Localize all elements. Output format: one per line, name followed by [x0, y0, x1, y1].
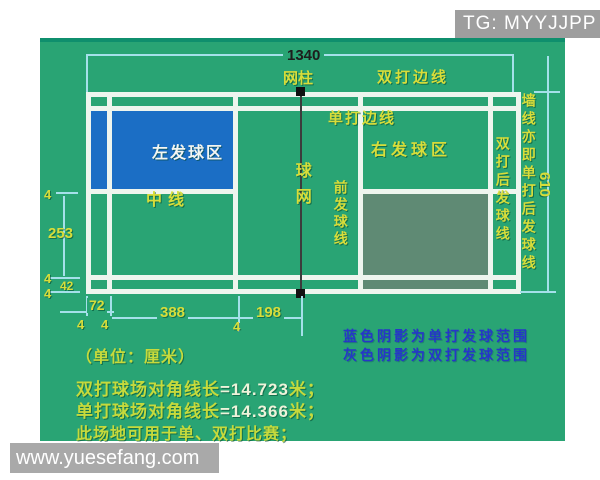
net-label: 球网	[292, 162, 309, 214]
doubles-sideline-label: 双打边线	[377, 70, 449, 86]
dim-label-610: 610	[536, 172, 552, 197]
court-line-right-doubles-long-service	[488, 92, 493, 294]
dim-label-42: 42	[60, 280, 73, 293]
singles-diagonal-note: 单打球场对角线长=14.366米；	[76, 397, 325, 422]
dim-label-388: 388	[157, 305, 188, 321]
dim-ext-72-right	[110, 296, 112, 316]
court-line-bottom-singles-sideline	[86, 275, 521, 280]
dim-tick-610-top	[534, 91, 560, 93]
blue-shading-note: 蓝色阴影为单打发球范围	[343, 326, 530, 346]
tg-badge: TG: MYYJJPP	[455, 10, 600, 38]
dim-ext-1340-left	[86, 54, 88, 92]
site-watermark: www.yuesefang.com	[10, 443, 219, 473]
court-line-left-back-boundary	[86, 92, 91, 294]
gray-shading-note: 灰色阴影为双打发球范围	[343, 345, 530, 365]
dim-tick-centerline	[56, 192, 78, 194]
dim-label-1340: 1340	[283, 48, 324, 64]
dim-label-253: 253	[48, 226, 73, 242]
court-line-left-front-service	[233, 92, 238, 294]
right-service-area-label: 右发球区	[371, 143, 451, 160]
front-service-line-label: 前发球线	[333, 180, 348, 248]
singles-diagonal-suffix: 米；	[289, 402, 325, 421]
wall-line-label: 墙线亦即单打后发球线	[521, 93, 536, 273]
dim-label-4-centerline: 4	[44, 188, 51, 202]
doubles-back-service-line-label: 双打后发球线	[495, 136, 510, 244]
dim-label-4-b3: 4	[233, 320, 240, 334]
net-post-label: 网柱	[283, 71, 313, 87]
singles-diagonal-value: =14.366	[220, 402, 289, 421]
court-line-left-doubles-long-service	[107, 92, 112, 294]
singles-diagonal-prefix: 单打球场对角线长	[76, 402, 220, 421]
usage-note: 此场地可用于单、双打比赛；	[76, 420, 297, 444]
dim-label-198: 198	[253, 305, 284, 321]
net-post-top	[296, 87, 305, 96]
left-service-area-label: 左发球区	[152, 146, 224, 163]
dim-label-4-b2: 4	[101, 318, 108, 332]
dim-ext-net	[301, 296, 303, 336]
singles-sideline-label: 单打边线	[328, 111, 396, 127]
dim-label-4-b1: 4	[77, 318, 84, 332]
dim-label-72: 72	[87, 298, 107, 313]
unit-note: （单位：厘米）	[76, 343, 195, 367]
dim-ext-1340-right	[512, 54, 514, 92]
dim-label-4-doubles: 4	[44, 287, 51, 301]
dim-tick-610-bottom	[520, 291, 556, 293]
court-line-top-singles-sideline	[86, 106, 521, 111]
center-line-label: 中线	[146, 193, 190, 210]
dim-label-4-singles: 4	[44, 272, 51, 286]
